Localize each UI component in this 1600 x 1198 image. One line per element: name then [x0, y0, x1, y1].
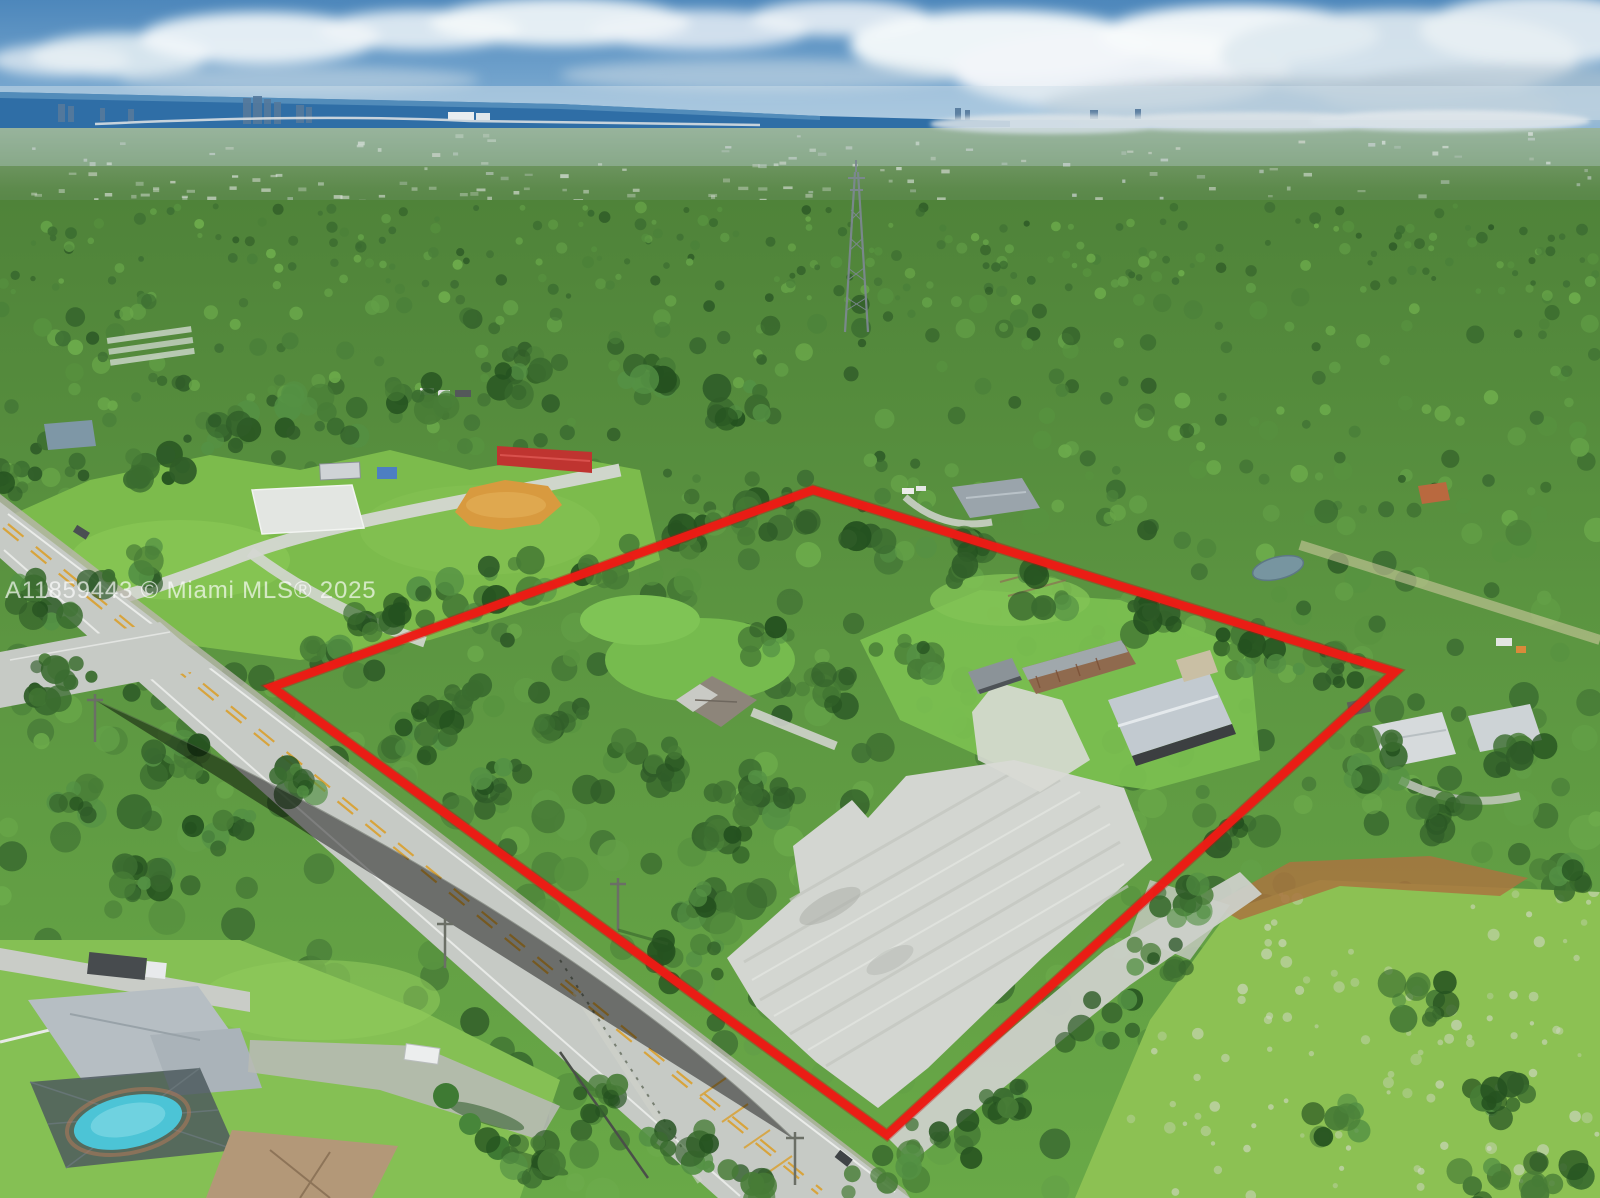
- distant-buildings: [448, 112, 474, 120]
- tractor: [1516, 646, 1526, 653]
- blue-tarp: [377, 467, 397, 479]
- vehicle: [1496, 638, 1512, 646]
- aerial-photo-canvas: [0, 0, 1600, 1198]
- parked-vehicle: [455, 390, 471, 397]
- concrete-pad: [252, 485, 364, 534]
- infield-highlight: [466, 492, 546, 518]
- palm-crown: [433, 1083, 459, 1109]
- distant-buildings: [476, 113, 490, 120]
- house-roof-west: [44, 420, 96, 450]
- parked-car: [902, 488, 914, 494]
- trailer: [320, 462, 361, 480]
- truck-cab: [145, 961, 167, 979]
- aerial-photo: A11859443 © Miami MLS® 2025: [0, 0, 1600, 1198]
- parked-car: [916, 486, 926, 491]
- palm-crown: [459, 1113, 481, 1135]
